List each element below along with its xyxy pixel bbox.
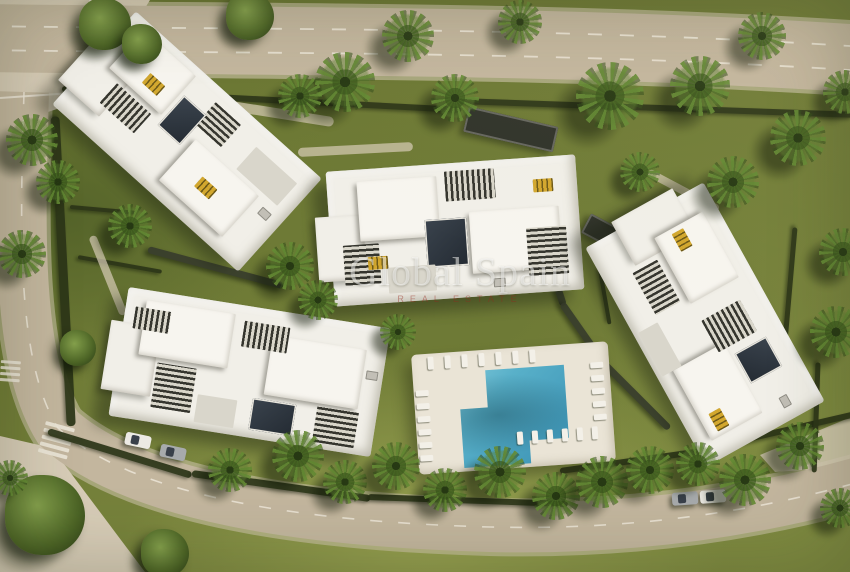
sun-lounger [419,442,432,449]
sun-lounger [562,428,569,441]
sun-lounger [517,431,524,444]
tree [122,24,162,64]
sun-lounger [577,427,584,440]
tree [141,529,189,572]
car-windshield [130,435,140,446]
sun-lounger [591,375,604,382]
sun-lounger [593,401,606,408]
yellow-sun-loungers [368,256,389,270]
sun-lounger [444,355,451,368]
rooftop-ac-unit [493,278,506,288]
sun-lounger [417,416,430,423]
sun-lounger [420,455,433,462]
sun-lounger [427,356,434,369]
sun-lounger [478,353,485,366]
sun-lounger [532,430,539,443]
sun-lounger [592,388,605,395]
aerial-render-scene: Global Spain REAL ESTATE [0,0,850,572]
roof-pergola-slats [526,225,569,276]
rooftop-ac-unit [365,370,378,381]
roof-terrace [194,394,238,428]
apartment-building-center [326,154,585,306]
sun-lounger [512,351,519,364]
sun-lounger [461,354,468,367]
roof-pergola-slats [150,362,197,413]
sun-lounger [547,429,554,442]
tree [60,330,96,366]
roof-terrace [387,264,437,293]
car-windshield [165,447,175,458]
sun-lounger [416,403,429,410]
sun-lounger [418,429,431,436]
sun-lounger [416,390,429,397]
sun-lounger [590,362,603,369]
sun-lounger [594,414,607,421]
roof-skylight-glass [424,217,469,268]
sun-lounger [495,352,502,365]
sun-lounger [591,426,598,439]
roof-pergola-slats [444,168,496,201]
sun-lounger [529,349,536,362]
yellow-sun-loungers [533,178,554,192]
